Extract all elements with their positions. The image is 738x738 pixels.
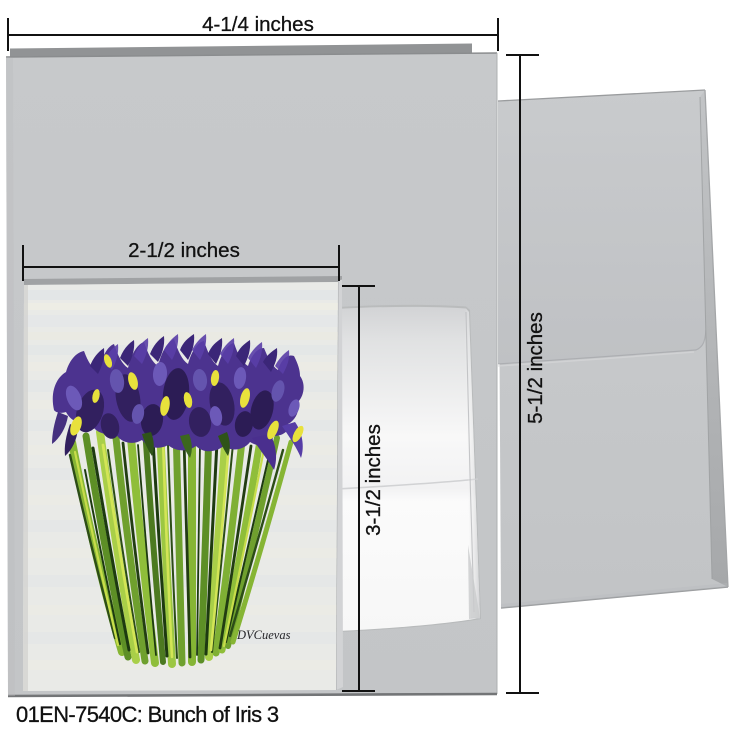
svg-text:4-1/4 inches: 4-1/4 inches (202, 13, 314, 36)
svg-text:DVCuevas: DVCuevas (236, 628, 291, 642)
svg-text:01EN-7540C: Bunch of Iris 3: 01EN-7540C: Bunch of Iris 3 (16, 702, 279, 727)
svg-text:2-1/2 inches: 2-1/2 inches (128, 239, 240, 262)
svg-text:3-1/2 inches: 3-1/2 inches (362, 424, 385, 536)
svg-text:5-1/2 inches: 5-1/2 inches (524, 312, 547, 424)
